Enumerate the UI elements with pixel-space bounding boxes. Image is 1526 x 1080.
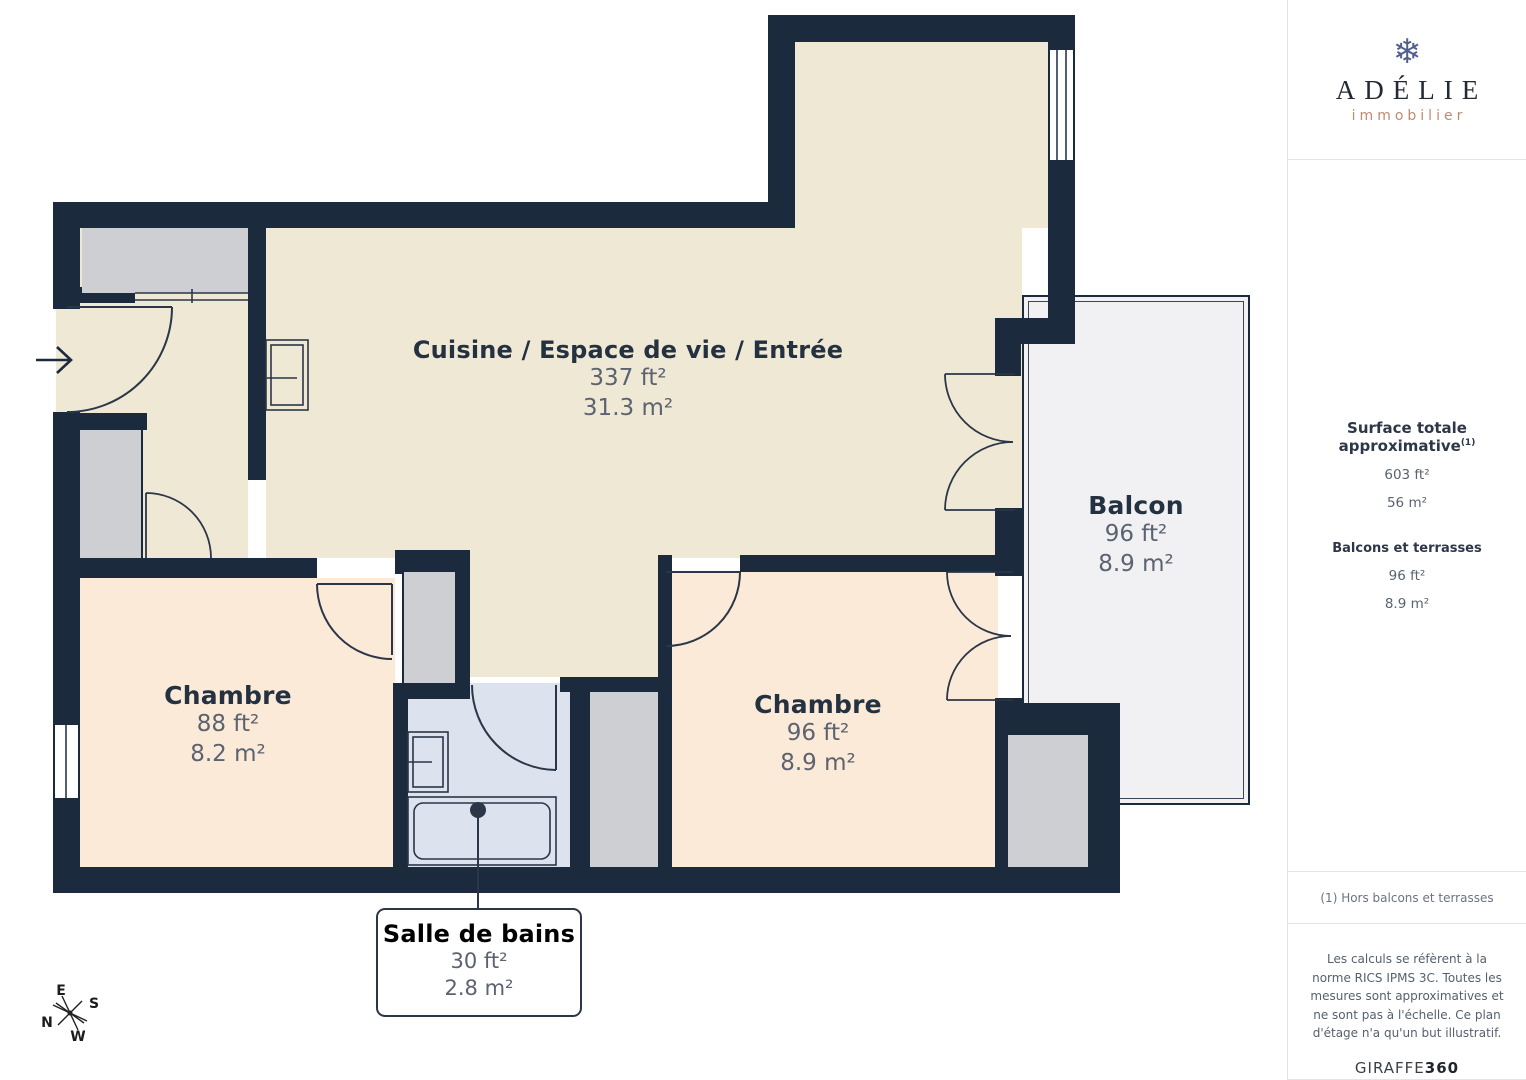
surface-total-heading-text: Surface totale approximative: [1339, 419, 1467, 455]
room-name: Chambre: [103, 681, 353, 710]
label-bedroom-right: Chambre 96 ft² 8.9 m²: [693, 690, 943, 779]
room-area-ft: 337 ft²: [368, 364, 888, 394]
hall-closet-door: [146, 493, 211, 558]
room-area-ft: 30 ft²: [378, 948, 580, 975]
room-area-m: 31.3 m²: [368, 394, 888, 424]
entry-arrow-icon: [36, 347, 71, 373]
bathroom-callout: Salle de bains 30 ft² 2.8 m²: [376, 908, 582, 1017]
compass-s: S: [89, 996, 99, 1012]
legal-section: Les calculs se réfèrent à la norme RICS …: [1288, 924, 1526, 1080]
room-name: Chambre: [693, 690, 943, 719]
sliding-door-entry-closet: [135, 289, 248, 303]
label-bedroom-left: Chambre 88 ft² 8.2 m²: [103, 681, 353, 770]
balconies-ft: 96 ft²: [1389, 568, 1426, 584]
footnote-marker: (1): [1461, 438, 1476, 448]
balconies-heading: Balcons et terrasses: [1332, 541, 1482, 556]
legal-disclaimer: Les calculs se réfèrent à la norme RICS …: [1308, 950, 1506, 1043]
room-area-ft: 88 ft²: [103, 710, 353, 740]
room-area-m: 8.9 m²: [1030, 550, 1242, 580]
bathroom-leader-line: [470, 802, 486, 908]
bathroom-door: [472, 685, 556, 770]
giraffe360-logo: GIRAFFE360: [1308, 1059, 1506, 1077]
compass-w: W: [70, 1029, 85, 1045]
giraffe-text: GIRAFFE: [1355, 1059, 1425, 1077]
room-area-m: 8.2 m²: [103, 740, 353, 770]
label-balcony: Balcon 96 ft² 8.9 m²: [1030, 491, 1242, 580]
bedroom-right-door: [666, 572, 740, 646]
footnote: (1) Hors balcons et terrasses: [1288, 872, 1526, 924]
french-doors-kitchen: [945, 374, 1015, 510]
info-sidebar: ❄ ADÉLIE immobilier Surface totale appro…: [1287, 0, 1526, 1080]
agency-tagline: immobilier: [1352, 108, 1467, 124]
room-area-m: 2.8 m²: [378, 975, 580, 1002]
giraffe-360: 360: [1425, 1059, 1459, 1077]
agency-brand-name: ADÉLIE: [1336, 75, 1487, 106]
compass-e: E: [56, 983, 66, 999]
compass-rose: E S N W: [41, 983, 99, 1045]
bathroom-sink: [408, 732, 448, 792]
bedroom-left-door: [317, 584, 392, 659]
surface-summary: Surface totale approximative(1) 603 ft² …: [1288, 160, 1526, 872]
agency-logo: ❄ ADÉLIE immobilier: [1288, 0, 1526, 160]
room-name: Salle de bains: [378, 920, 580, 948]
room-area-ft: 96 ft²: [1030, 520, 1242, 550]
balconies-m: 8.9 m²: [1385, 596, 1429, 612]
surface-total-heading: Surface totale approximative(1): [1298, 419, 1516, 455]
floor-plan: E S N W Cuisine / Espace de vie / Entrée…: [0, 0, 1287, 1080]
surface-total-m: 56 m²: [1387, 495, 1427, 511]
label-kitchen-living: Cuisine / Espace de vie / Entrée 337 ft²…: [368, 336, 888, 424]
room-area-ft: 96 ft²: [693, 719, 943, 749]
room-name: Cuisine / Espace de vie / Entrée: [368, 336, 888, 364]
room-area-m: 8.9 m²: [693, 749, 943, 779]
surface-total-ft: 603 ft²: [1384, 467, 1429, 483]
snowflake-icon: ❄: [1393, 35, 1422, 69]
room-name: Balcon: [1030, 491, 1242, 520]
electrical-box: [266, 340, 308, 410]
entry-door: [67, 307, 172, 412]
compass-n: N: [41, 1015, 53, 1031]
french-doors-bedroom: [947, 572, 1013, 700]
